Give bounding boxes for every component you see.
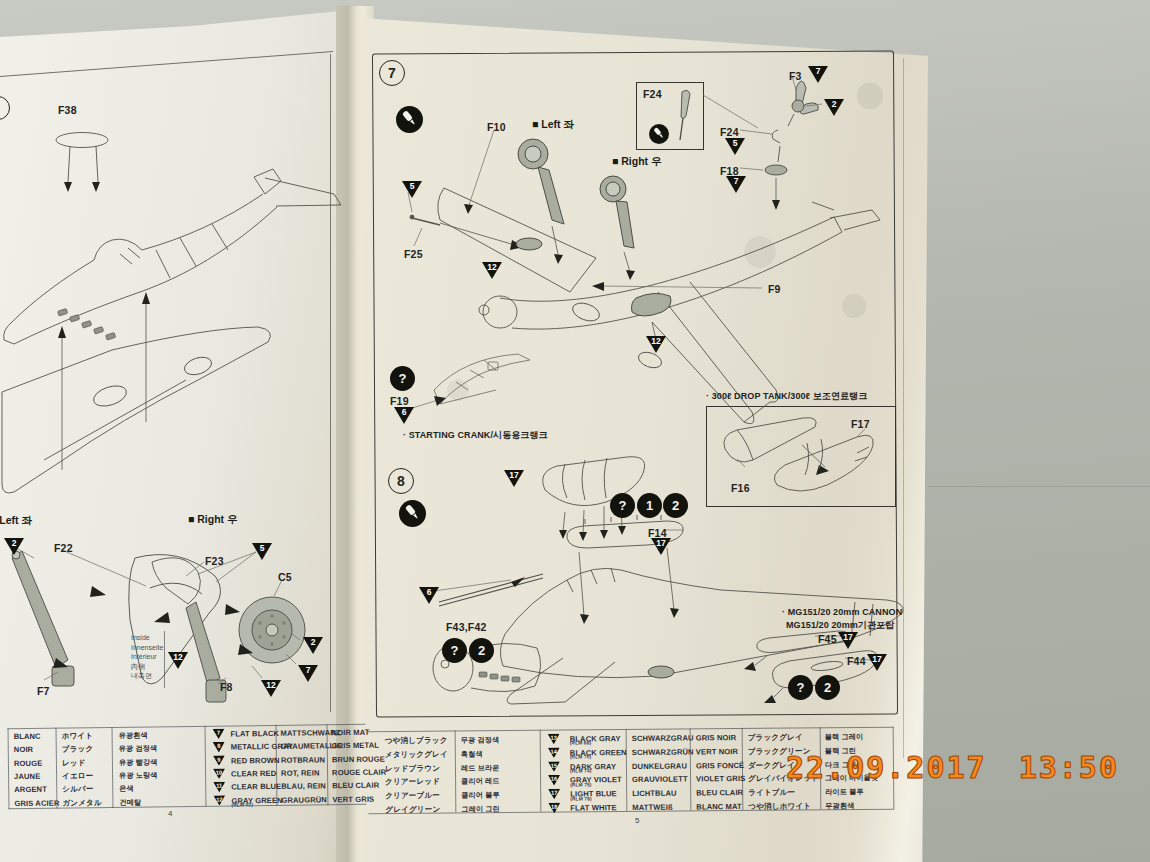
color-name-de: BLAU, REIN xyxy=(281,781,326,791)
number-2-icon: 2 xyxy=(663,493,688,518)
color-name-ja: レッドブラウン xyxy=(385,763,440,773)
color-name-ko: 유광 노랑색 xyxy=(119,770,158,780)
assembly-triangle-marker-12: 12 xyxy=(168,652,188,669)
question-icon: ? xyxy=(788,675,813,700)
table-divider xyxy=(55,728,57,809)
color-name-ko: 건메탈 xyxy=(119,797,141,807)
color-name-ja: シルバー xyxy=(62,784,93,794)
color-name-ja: グレイグリーン xyxy=(385,805,440,815)
table-divider xyxy=(540,730,542,812)
color-name-ko: 클리어 블루 xyxy=(461,790,500,800)
question-icon: ? xyxy=(390,366,415,391)
part-label-F10: F10 xyxy=(487,121,506,133)
assembly-triangle-marker-17: 17 xyxy=(651,538,671,555)
table-divider xyxy=(204,726,206,807)
color-name-ko: 은색 xyxy=(119,784,134,794)
assembly-triangle-marker-2: 2 xyxy=(824,99,844,116)
color-name-en: FLAT WHITE xyxy=(570,803,616,812)
color-name-ko: 그레이 그린 xyxy=(461,804,500,814)
color-name-de: ROTBRAUN xyxy=(281,755,325,765)
color-name-ko: 흑철색 xyxy=(461,749,483,759)
assembly-triangle-marker-5: 5 xyxy=(725,138,745,155)
part-label-C5: C5 xyxy=(278,571,292,583)
number-2-icon: 2 xyxy=(815,675,840,700)
color-name-de: SCHWARZGRÜN xyxy=(632,747,694,757)
assembly-triangle-marker-7: 7 xyxy=(213,729,225,740)
color-name-de: GRAUGRÜN xyxy=(281,795,327,805)
color-name-ko: 무광 검정색 xyxy=(461,735,500,745)
part-label-F43,F42: F43,F42 xyxy=(446,621,487,633)
part-label-F24: F24 xyxy=(643,88,662,100)
assembly-triangle-marker-7: 7 xyxy=(726,176,746,193)
color-name-de: LICHTBLAU xyxy=(632,789,676,798)
color-name-fr: ROUGE xyxy=(14,758,42,767)
part-label-F9: F9 xyxy=(768,283,781,295)
color-rlm-code: (RLM 74) xyxy=(570,768,591,773)
color-name-ja: つや消しホワイト xyxy=(748,801,811,812)
color-name-en: RED BROWN xyxy=(231,755,280,765)
color-name-fr: GRIS NOIR xyxy=(696,733,737,742)
assembly-triangle-marker-17: 17 xyxy=(548,789,560,800)
number-1-icon: 1 xyxy=(637,493,662,518)
color-name-ko: 유광흰색 xyxy=(119,730,148,740)
assembly-triangle-marker-9: 9 xyxy=(213,755,225,766)
part-label-F17: F17 xyxy=(851,418,870,430)
assembly-triangle-marker-10: 10 xyxy=(213,768,225,779)
color-table-left-strip: BLANCホワイト유광흰색NOIRブラック유광 검정색ROUGEレッド유광 빨강… xyxy=(8,724,367,812)
color-name-ja: ブラック xyxy=(62,744,94,754)
color-name-ja: ガンメタル xyxy=(62,798,101,808)
color-rlm-code: (RLM 75) xyxy=(570,782,591,787)
color-name-fr: BLANC xyxy=(14,732,41,741)
assembly-triangle-marker-17: 17 xyxy=(867,654,887,671)
glue-icon xyxy=(399,500,426,527)
part-label-F24: F24 xyxy=(720,126,739,138)
assembly-triangle-marker-5: 5 xyxy=(252,543,272,560)
table-divider xyxy=(455,731,457,813)
number-2-icon: 2 xyxy=(469,638,494,663)
color-name-ko: 라이트 블루 xyxy=(825,787,864,797)
assembly-triangle-marker-8: 8 xyxy=(213,742,225,753)
table-divider xyxy=(111,727,113,808)
color-name-ko: 블랙 그레이 xyxy=(825,732,864,742)
color-name-fr: GRIS FONCÉ xyxy=(696,761,744,770)
part-label-F38: F38 xyxy=(58,104,77,116)
glue-icon xyxy=(396,106,423,133)
color-name-ja: メタリックグレイ xyxy=(385,749,448,760)
color-name-en: FLAT BLACK xyxy=(231,729,280,739)
color-name-de: DUNKELGRAU xyxy=(632,761,687,770)
color-name-ja: つや消しブラック xyxy=(385,736,448,747)
color-name-ja: クリアーレッド xyxy=(385,777,440,787)
color-rlm-code: (RLM 02) xyxy=(231,802,253,807)
assembly-triangle-marker-14: 14 xyxy=(548,747,560,758)
color-name-fr: NOIR xyxy=(14,745,33,754)
part-label-F18: F18 xyxy=(720,165,739,177)
color-name-de: SCHWARZGRAU xyxy=(632,733,694,743)
part-label-F7: F7 xyxy=(37,685,50,697)
color-name-en: CLEAR RED xyxy=(231,769,276,779)
photo-of-instruction-sheet: 7 8 ■ Left 좌 ■ Right 우 ■ Left 좌 ■ Right … xyxy=(0,0,1150,862)
color-name-fr: NOIR MAT xyxy=(332,728,370,737)
table-divider xyxy=(626,729,628,811)
color-name-ko: 유광 빨강색 xyxy=(119,757,158,767)
color-name-ja: ブラックグレイ xyxy=(748,732,803,742)
color-name-ja: クリアーブルー xyxy=(385,791,440,801)
color-name-ko: 무광흰색 xyxy=(825,801,854,811)
assembly-triangle-marker-16: 16 xyxy=(548,775,560,786)
camera-timestamp: 22.09.2017 13:50 xyxy=(786,750,1119,785)
part-label-F14: F14 xyxy=(648,527,667,539)
assembly-triangle-marker-7: 7 xyxy=(298,665,318,682)
assembly-triangle-marker-5: 5 xyxy=(402,181,422,198)
color-name-ko: 클리어 레드 xyxy=(461,777,500,787)
part-label-F22: F22 xyxy=(54,542,73,554)
part-label-F44: F44 xyxy=(847,655,866,667)
part-label-F19: F19 xyxy=(390,395,409,407)
assembly-triangle-marker-13: 13 xyxy=(548,734,560,745)
color-name-ja: ホワイト xyxy=(62,731,94,741)
part-label-F25: F25 xyxy=(404,248,423,260)
assembly-triangle-marker-17: 17 xyxy=(504,470,524,487)
color-rlm-code: (RLM 70) xyxy=(570,754,591,759)
assembly-triangle-marker-15: 15 xyxy=(548,761,560,772)
color-name-de: MATTWEIß xyxy=(632,803,672,812)
color-name-fr: GRIS ACIER xyxy=(14,798,59,808)
color-name-fr: VERT NOIR xyxy=(696,747,738,756)
question-icon: ? xyxy=(442,638,467,663)
assembly-triangle-marker-2: 2 xyxy=(4,538,24,555)
assembly-triangle-marker-2: 2 xyxy=(303,637,323,654)
part-label-F45: F45 xyxy=(818,633,837,645)
assembly-triangle-marker-6: 6 xyxy=(419,587,439,604)
table-border xyxy=(8,728,10,809)
color-name-de: GRAUVIOLETT xyxy=(632,775,688,784)
part-label-F16: F16 xyxy=(731,482,750,494)
color-name-ja: ライトブルー xyxy=(748,788,795,798)
part-label-F3: F3 xyxy=(789,70,802,82)
color-name-en: CLEAR BLUE xyxy=(231,782,281,792)
color-rlm-code: (RLM 76) xyxy=(570,796,591,801)
color-name-ko: 레드 브라운 xyxy=(461,763,500,773)
color-name-fr: BLEU CLAIR xyxy=(696,788,743,797)
assembly-triangle-marker-17: 17 xyxy=(838,632,858,649)
color-rlm-code: (RLM 66) xyxy=(570,741,591,746)
part-label-F23: F23 xyxy=(205,555,224,567)
glue-icon xyxy=(649,124,669,144)
color-name-ko: 유광 검정색 xyxy=(119,744,158,754)
color-name-fr: BLANC MAT xyxy=(696,802,742,811)
part-label-F8: F8 xyxy=(220,681,233,693)
assembly-triangle-marker-12: 12 xyxy=(482,262,502,279)
color-name-fr: VIOLET GRIS xyxy=(696,774,745,783)
color-name-ja: イエロー xyxy=(62,771,93,781)
color-name-de: ROT, REIN xyxy=(281,768,320,777)
assembly-triangle-marker-12: 12 xyxy=(646,336,666,353)
question-icon: ? xyxy=(610,493,635,518)
color-name-fr: JAUNE xyxy=(14,772,40,781)
assembly-triangle-marker-12: 12 xyxy=(261,680,281,697)
assembly-triangle-marker-11: 11 xyxy=(213,782,225,793)
assembly-triangle-marker-6: 6 xyxy=(394,407,414,424)
assembly-triangle-marker-7: 7 xyxy=(808,66,828,83)
assembly-triangle-marker-12: 12 xyxy=(213,795,225,806)
color-name-ja: レッド xyxy=(62,758,86,768)
color-name-fr: ARGENT xyxy=(14,785,47,794)
